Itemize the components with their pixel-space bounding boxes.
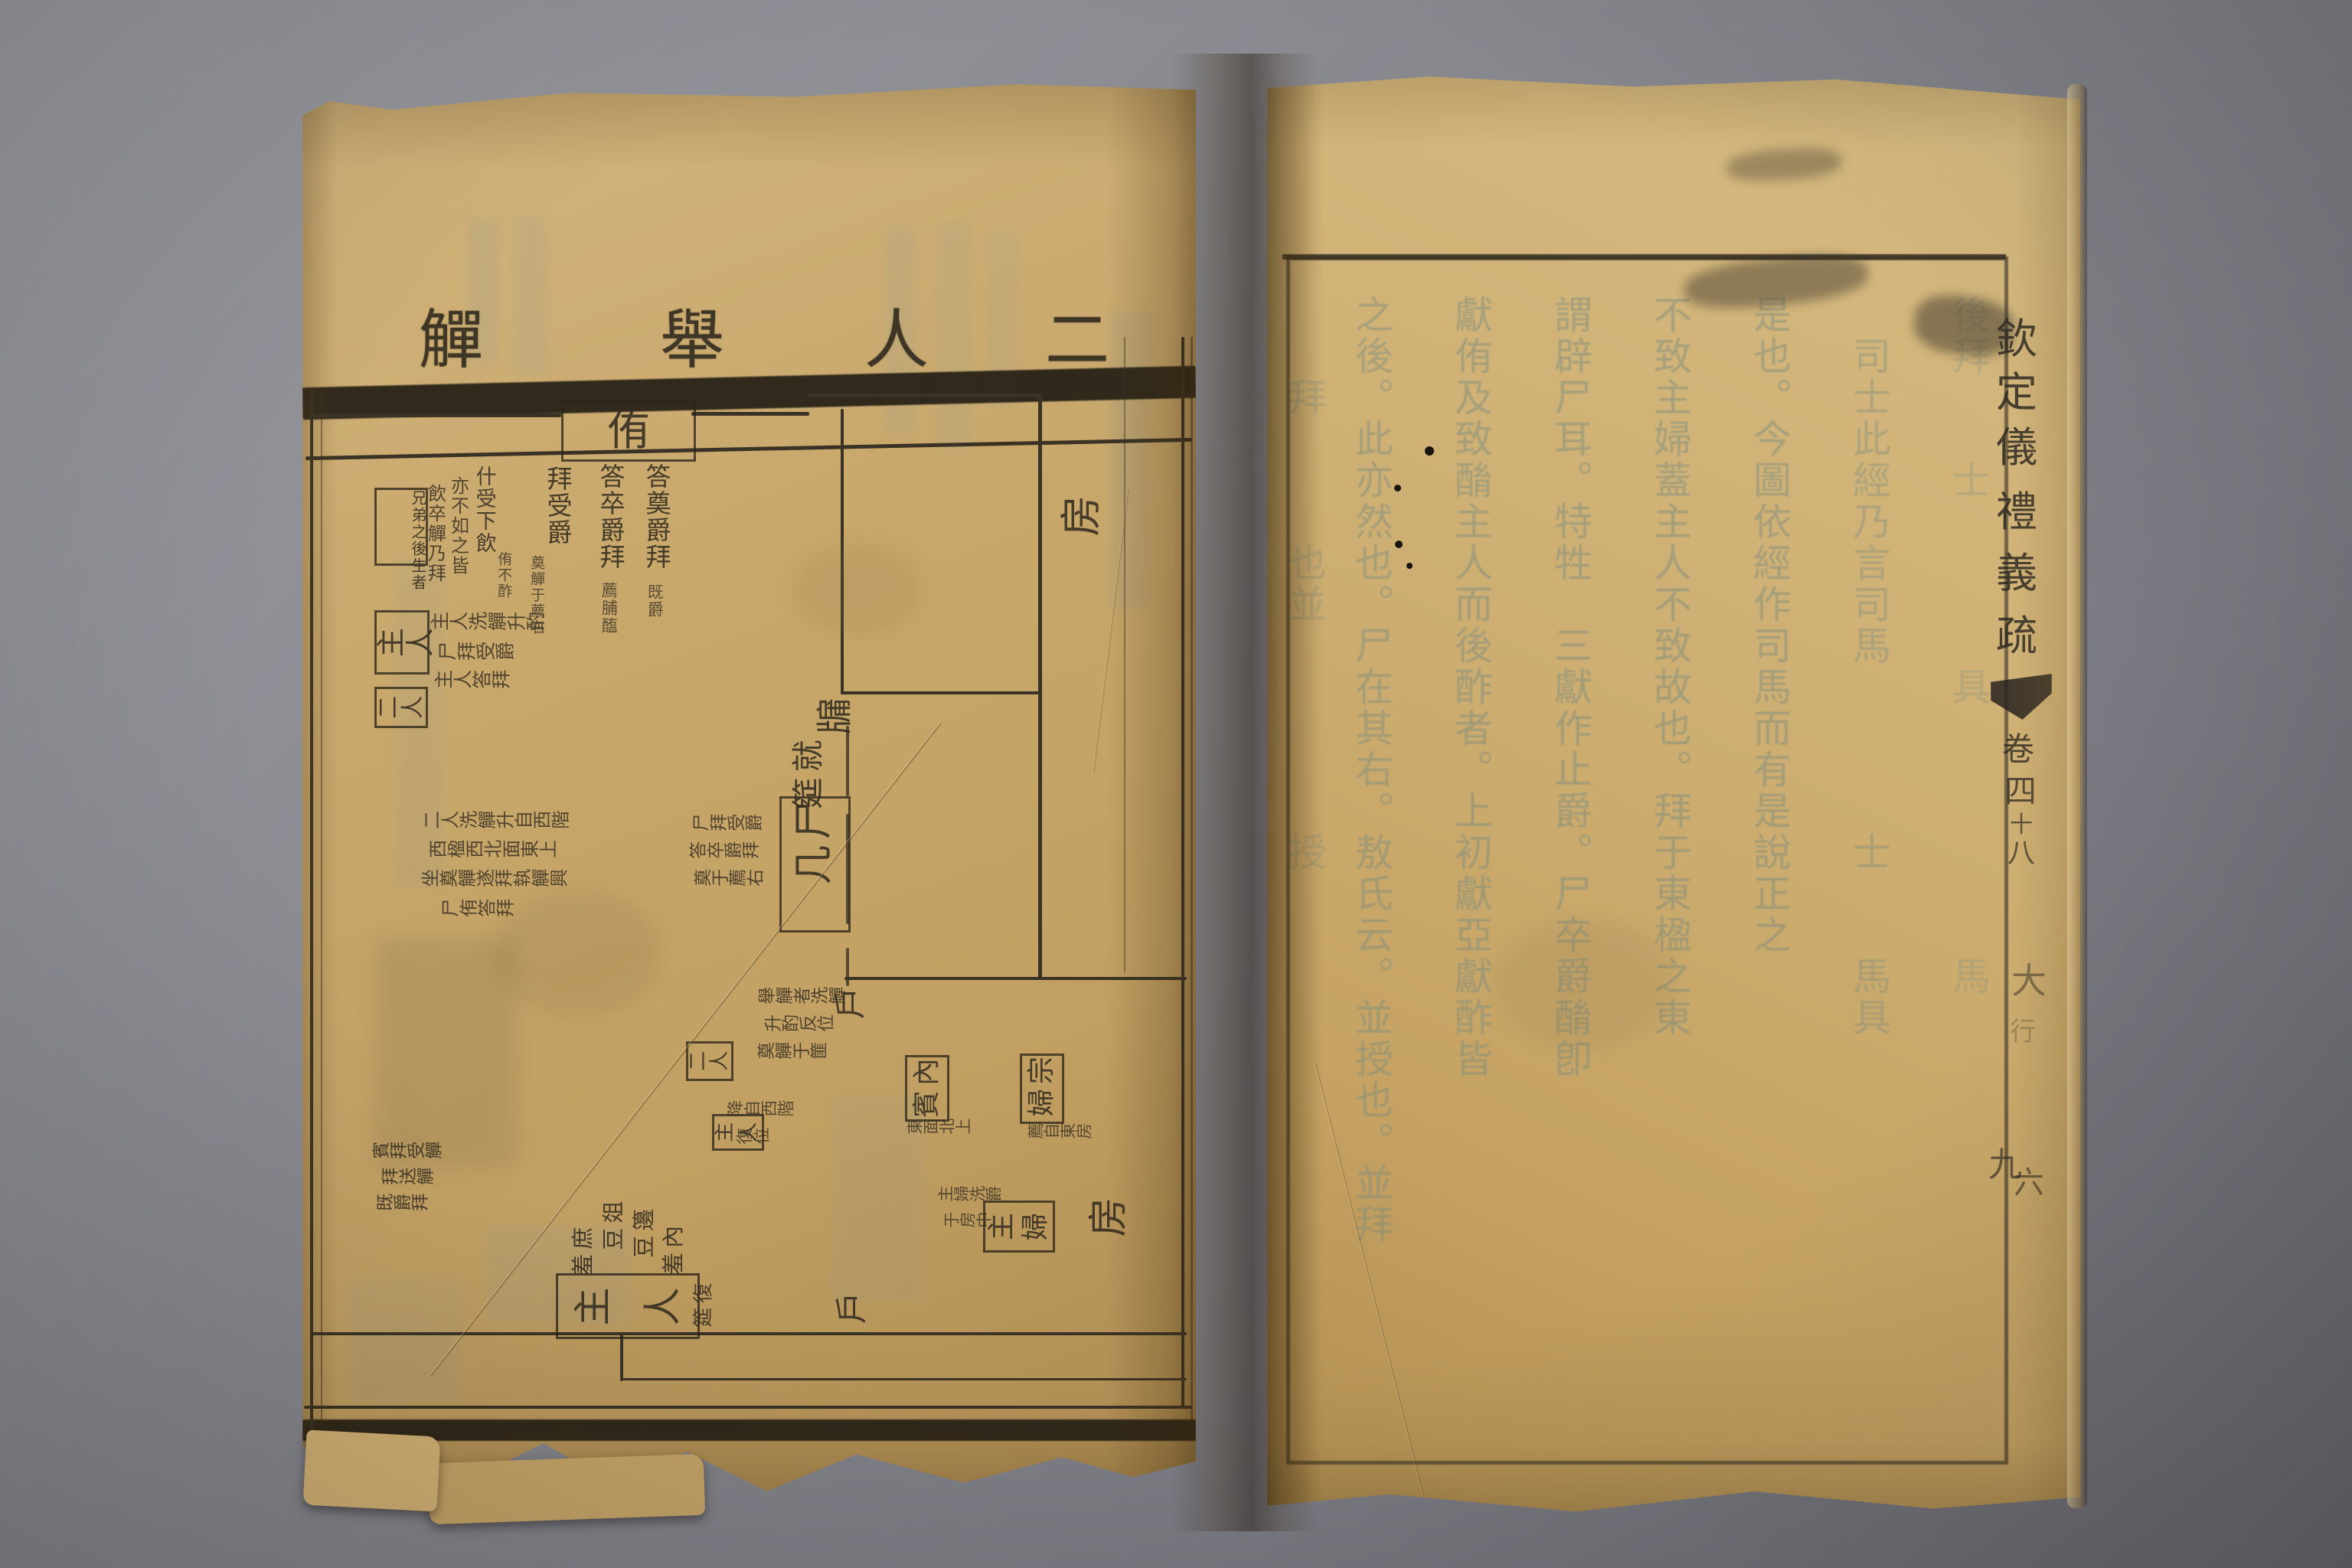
annotation-rot: 尸侑答拜: [442, 898, 515, 917]
wall-line: [310, 1332, 1187, 1335]
annotation-rot: 主人洗觶升酌: [431, 611, 546, 632]
annotation: 亦不如之皆: [448, 476, 467, 576]
ink-speck: [1395, 541, 1403, 548]
annotation: 答卒爵拜: [596, 463, 623, 570]
faint-text-column: 後拜 士 具 馬: [1941, 295, 1996, 1443]
offerings-label: 庶羞: [572, 1227, 594, 1276]
bleedthrough-ghost: [375, 938, 517, 1168]
wall-line: [305, 438, 1192, 460]
faint-text-column: 之後。此亦然也。尸在其右。敖氏云。並授也。並拜: [1344, 295, 1399, 1443]
title-char: 舉: [660, 306, 724, 374]
annotation-rot: 答卒爵拜: [690, 841, 760, 859]
spine-title-char: 禮: [1996, 478, 2037, 538]
wall-line: [312, 413, 561, 417]
spine-mark: 大: [2011, 953, 2047, 1004]
annotation-rot: 舉觶者洗觶: [759, 986, 847, 1004]
paper-stain: [494, 888, 662, 1018]
corpse-stool-box: 尸几: [779, 796, 851, 933]
window-label: 牖: [817, 697, 854, 736]
annotation-small: 侑不酢: [496, 551, 511, 599]
annotation-rot: 坐奠觶遂拜執觶興: [422, 868, 569, 887]
clan-wives-box: 宗婦: [1020, 1053, 1064, 1124]
ink-speck: [1406, 563, 1413, 569]
annotation-rot: 奠于薦右: [694, 868, 765, 887]
wall-line: [620, 1332, 623, 1381]
wall-line: [846, 948, 849, 986]
wall-line: [310, 389, 313, 1430]
bleedthrough-ghost: [936, 220, 972, 450]
wall-line: [1124, 337, 1125, 972]
two-men-box-west: 二人: [374, 687, 428, 728]
annotation-small: 既爵: [646, 583, 663, 619]
annotation-rot: 薦自東房: [1028, 1122, 1093, 1139]
annotation: 答奠爵拜: [642, 463, 669, 570]
volume-char: 八: [2007, 831, 2035, 871]
faint-text-column: 是也。今圖依經作司馬而有是說正之: [1742, 295, 1797, 1443]
return-to-mat-label: 復筵: [694, 1282, 714, 1328]
you-attendant-box: 侑: [561, 400, 696, 462]
host-box-west: 主人: [374, 610, 430, 675]
left-page-diagram: 觶舉人二 侑兄弟之後生者主人二人尸几宗婦內賓主婦主人二人主人房房牖戶戶就筵答奠爵…: [302, 84, 1196, 1497]
spine-title-char: 疏: [1996, 602, 2037, 662]
offerings-label: 籩豆: [633, 1208, 655, 1258]
paper-stain: [792, 544, 923, 635]
wall-line: [808, 394, 1041, 397]
annotation-rot: 于房中: [944, 1211, 992, 1228]
chamber-label-north: 房: [1060, 494, 1102, 537]
annotation-small: 薦脯醢: [600, 582, 617, 635]
annotation-rot: 主婦洗爵: [938, 1185, 1002, 1202]
annotation-rot: 尸拜受爵: [693, 813, 763, 831]
annotation-rot: 二人洗觶升自西階: [423, 810, 570, 829]
annotation: 什受下飲: [472, 465, 495, 554]
door-label-south: 戶: [836, 1291, 868, 1325]
wall-line: [691, 412, 809, 416]
ink-smudge: [1726, 145, 1842, 184]
annotation: 飲卒觶乃拜: [425, 484, 444, 583]
faint-text-column: 獻侑及致酳主人而後酢者。上初獻亞獻酢皆: [1443, 295, 1498, 1443]
brothers-juniors-box: 兄弟之後生者: [374, 488, 428, 566]
annotation-rot: 尸拜受爵: [439, 641, 515, 661]
offerings-label: 爼豆: [603, 1200, 625, 1250]
wall-line: [1191, 337, 1193, 1424]
wall-line: [846, 726, 849, 796]
offerings-label: 內羞: [662, 1225, 684, 1275]
annotation: 拜受爵: [544, 465, 570, 546]
annotation-rot: 復位: [737, 1127, 771, 1145]
faint-text-column: 司士此經乃言司馬 士 馬具: [1841, 295, 1896, 1443]
margin-note-rot: 賓拜受觶: [373, 1141, 443, 1159]
page-number-char: 六: [2014, 1158, 2044, 1202]
bleedthrough-ghost: [513, 214, 548, 375]
margin-note-rot: 既爵拜: [377, 1193, 430, 1211]
photo-open-ritual-book: 觶舉人二 侑兄弟之後生者主人二人尸几宗婦內賓主婦主人二人主人房房牖戶戶就筵答奠爵…: [0, 0, 2352, 1568]
spine-mark: 行: [2010, 1011, 2036, 1048]
host-box-south: 主人: [556, 1273, 700, 1339]
faint-text-column: 拜 也並 授: [1277, 295, 1332, 1443]
spine-title-char: 義: [1996, 539, 2037, 599]
hostess-box: 主婦: [983, 1200, 1055, 1253]
wall-line: [321, 390, 322, 1428]
annotation-rot: 東面北上: [907, 1118, 972, 1135]
two-men-box-hall: 二人: [686, 1041, 733, 1081]
wall-line: [1181, 337, 1184, 1409]
bleedthrough-ghost: [348, 1279, 463, 1401]
wall-line: [622, 1378, 1187, 1380]
volume-char: 卷: [2002, 724, 2034, 770]
right-page-text: 後拜 士 具 馬 司士此經乃言司馬 士 馬具是也。今圖依經作司馬而有是說正之不致…: [1267, 77, 2080, 1514]
ink-speck: [1425, 446, 1434, 456]
faint-text-column: 不致主婦蓋主人不致故也。拜于東楹之東: [1642, 295, 1697, 1443]
wall-line: [1038, 394, 1042, 980]
wall-line: [302, 1419, 1196, 1441]
title-char: 二: [1045, 306, 1109, 374]
chamber-label-south: 房: [1089, 1196, 1129, 1238]
annotation-rot: 奠觶于篚: [758, 1041, 828, 1060]
take-mat-label: 就筵: [792, 739, 825, 810]
margin-note-rot: 拜送觶: [382, 1167, 435, 1185]
annotation-rot: 降自西階: [728, 1099, 795, 1117]
spine-title-char: 定: [1996, 358, 2037, 419]
paper-stain: [1497, 919, 1673, 1049]
ink-speck: [1394, 485, 1401, 492]
bleedthrough-ghost: [1110, 310, 1150, 609]
inner-guests-box: 內賓: [905, 1055, 949, 1122]
title-char: 觶: [419, 306, 483, 374]
spine-title-char: 儀: [1996, 413, 2037, 474]
faint-text-column: 謂辟尸耳。特牲 三獻作止爵。尸卒爵酳卽: [1543, 295, 1598, 1443]
wall-line: [304, 1406, 1192, 1409]
title-char: 人: [864, 306, 929, 374]
annotation-rot: 西楹西北面東上: [430, 839, 558, 858]
torn-paper-scrap: [428, 1454, 706, 1525]
annotation-rot: 主人答拜: [435, 669, 511, 690]
wall-line: [841, 691, 1041, 694]
wall-line: [844, 977, 1187, 980]
annotation-rot: 升酌反位: [765, 1014, 835, 1032]
torn-paper-scrap: [303, 1429, 441, 1511]
